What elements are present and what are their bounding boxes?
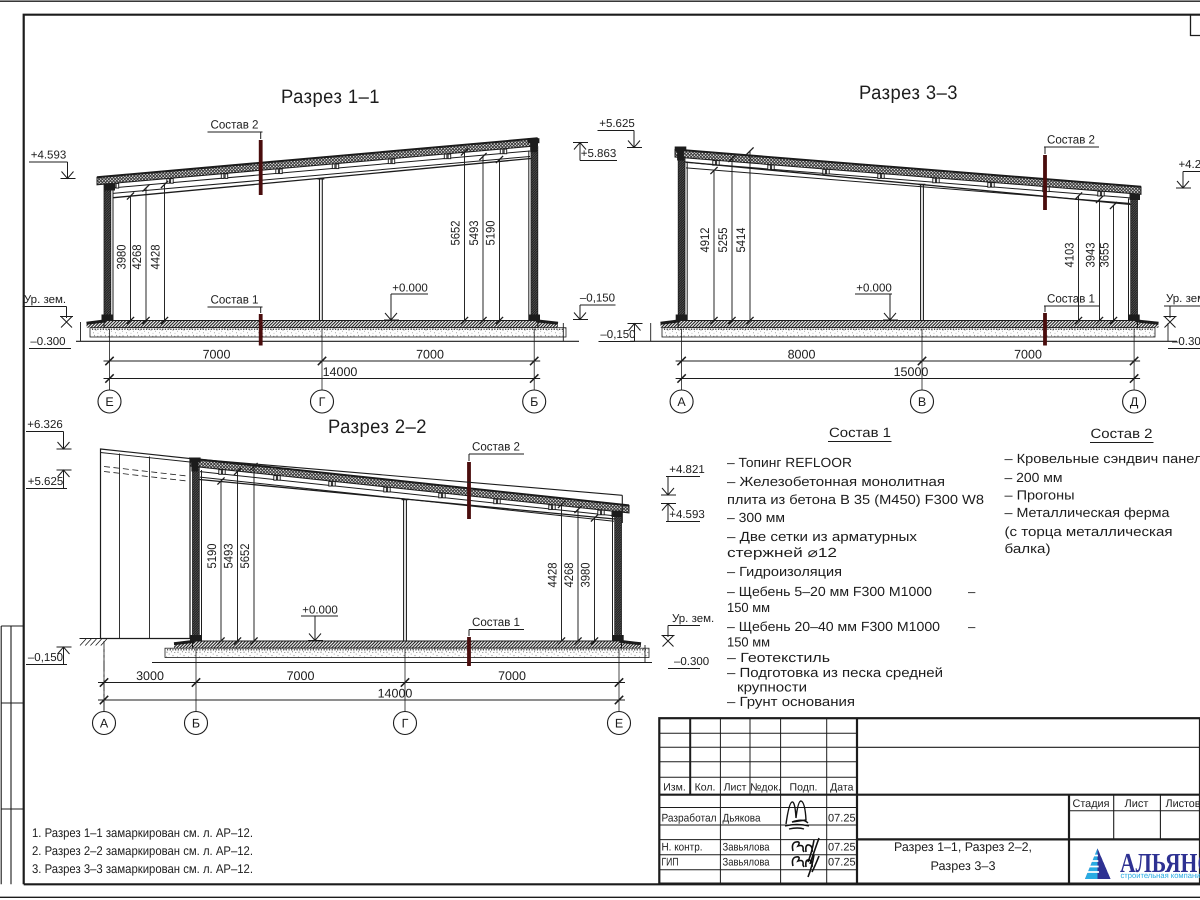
svg-text:–0,150: –0,150 <box>600 329 635 341</box>
svg-text:Состав 1: Состав 1 <box>1047 292 1095 306</box>
svg-text:Дьякова: Дьякова <box>723 813 762 825</box>
svg-text:Разрез 3–3: Разрез 3–3 <box>931 859 996 873</box>
svg-text:14000: 14000 <box>323 365 358 379</box>
svg-text:–: – <box>968 584 976 599</box>
svg-text:7000: 7000 <box>203 347 231 361</box>
svg-text:150 мм: 150 мм <box>727 635 770 650</box>
svg-text:Разработал: Разработал <box>662 813 717 825</box>
svg-text:3655: 3655 <box>1098 242 1112 267</box>
svg-text:4428: 4428 <box>546 562 560 587</box>
svg-text:5493: 5493 <box>222 543 236 568</box>
svg-text:7000: 7000 <box>287 669 315 683</box>
svg-text:3980: 3980 <box>579 562 593 587</box>
svg-text:4428: 4428 <box>149 244 163 269</box>
svg-text:Разрез 3–3: Разрез 3–3 <box>859 82 958 104</box>
svg-text:+5.625: +5.625 <box>599 118 635 130</box>
svg-text:В: В <box>918 395 926 409</box>
svg-text:2. Разрез 2–2 замаркирован см.: 2. Разрез 2–2 замаркирован см. л. АР–12. <box>32 844 253 858</box>
svg-text:15000: 15000 <box>894 365 929 379</box>
svg-text:Е: Е <box>105 395 113 409</box>
svg-text:– Железобетонная монолитная: – Железобетонная монолитная <box>727 474 945 489</box>
svg-text:+0.000: +0.000 <box>392 283 428 295</box>
svg-text:+0.000: +0.000 <box>302 605 338 617</box>
svg-text:Стадия: Стадия <box>1073 798 1110 810</box>
svg-text:7000: 7000 <box>416 347 444 361</box>
svg-text:5652: 5652 <box>449 220 463 245</box>
svg-text:–0.30: –0.30 <box>1172 336 1200 348</box>
svg-text:150 мм: 150 мм <box>727 600 770 615</box>
svg-text:– Щебень 5–20 мм F300 М1000: – Щебень 5–20 мм F300 М1000 <box>727 584 932 599</box>
svg-text:Листов: Листов <box>1166 798 1200 810</box>
svg-text:1. Разрез 1–1 замаркирован см.: 1. Разрез 1–1 замаркирован см. л. АР–12. <box>32 826 253 840</box>
svg-text:Ур. зем.: Ур. зем. <box>24 294 66 306</box>
svg-text:Б: Б <box>530 395 538 409</box>
svg-text:А: А <box>677 395 686 409</box>
svg-text:Лист: Лист <box>1125 798 1149 810</box>
svg-text:14000: 14000 <box>378 686 413 700</box>
svg-text:Разрез 1–1: Разрез 1–1 <box>281 86 380 108</box>
svg-text:8000: 8000 <box>788 347 816 361</box>
svg-text:+6.326: +6.326 <box>27 419 63 431</box>
svg-text:Г: Г <box>402 717 409 731</box>
svg-text:5190: 5190 <box>205 543 219 568</box>
svg-text:5652: 5652 <box>238 543 252 568</box>
svg-text:+5.863: +5.863 <box>581 148 617 160</box>
svg-text:– 200 мм: – 200 мм <box>1005 470 1063 485</box>
svg-text:07.25: 07.25 <box>828 857 856 869</box>
svg-text:–: – <box>968 619 976 634</box>
svg-text:Н. контр.: Н. контр. <box>662 842 703 854</box>
svg-text:7000: 7000 <box>498 669 526 683</box>
svg-text:– Металлическая ферма: – Металлическая ферма <box>1005 505 1171 520</box>
svg-text:Б: Б <box>192 717 200 731</box>
svg-text:4912: 4912 <box>698 227 712 252</box>
svg-text:– Прогоны: – Прогоны <box>1005 488 1075 503</box>
svg-text:– 300 мм: – 300 мм <box>727 510 785 525</box>
svg-text:3. Разрез 3–3 замаркирован см.: 3. Разрез 3–3 замаркирован см. л. АР–12. <box>32 862 253 876</box>
svg-text:стержней ⌀12: стержней ⌀12 <box>727 545 837 560</box>
svg-text:–0.300: –0.300 <box>30 336 65 348</box>
svg-text:А: А <box>100 717 109 731</box>
svg-text:Завьялова: Завьялова <box>723 857 771 869</box>
svg-text:Состав 2: Состав 2 <box>472 440 520 454</box>
svg-text:плита из бетона В 35 (М450) F3: плита из бетона В 35 (М450) F300 W8 <box>727 492 984 507</box>
svg-text:4103: 4103 <box>1063 242 1077 267</box>
svg-text:– Кровельные сэндвич панели: – Кровельные сэндвич панели <box>1005 451 1200 466</box>
svg-text:+4.593: +4.593 <box>669 509 705 521</box>
svg-text:ГИП: ГИП <box>662 857 679 869</box>
svg-text:– Щебень 20–40 мм F300 М1000: – Щебень 20–40 мм F300 М1000 <box>727 619 940 634</box>
svg-text:+4.593: +4.593 <box>31 150 67 162</box>
svg-text:строительная компания: строительная компания <box>1121 871 1200 880</box>
svg-text:– Две сетки из арматурных: – Две сетки из арматурных <box>727 529 917 544</box>
svg-text:– Гидроизоляция: – Гидроизоляция <box>727 564 842 579</box>
svg-text:Ур. зем.: Ур. зем. <box>672 613 714 625</box>
svg-text:+4.821: +4.821 <box>669 464 705 476</box>
svg-text:Разрез 2–2: Разрез 2–2 <box>328 416 427 438</box>
svg-text:– Топинг REFLOOR: – Топинг REFLOOR <box>727 455 852 470</box>
svg-text:3943: 3943 <box>1084 242 1098 267</box>
svg-text:07.25: 07.25 <box>828 813 856 825</box>
svg-text:–0,150: –0,150 <box>580 293 615 305</box>
svg-text:Состав 2: Состав 2 <box>1047 133 1095 147</box>
svg-text:4268: 4268 <box>130 244 144 269</box>
svg-text:(с торца металлическая: (с торца металлическая <box>1005 524 1173 539</box>
svg-text:№док.: №док. <box>750 782 781 794</box>
svg-text:Ур. зем.: Ур. зем. <box>1166 293 1200 305</box>
svg-text:3980: 3980 <box>115 244 129 269</box>
svg-text:Дата: Дата <box>830 782 853 794</box>
svg-text:+0.000: +0.000 <box>856 283 892 295</box>
svg-text:3000: 3000 <box>136 669 164 683</box>
svg-text:– Грунт основания: – Грунт основания <box>727 694 855 709</box>
svg-text:Изм.: Изм. <box>663 782 686 794</box>
svg-text:+5.625: +5.625 <box>28 476 64 488</box>
svg-text:Завьялова: Завьялова <box>723 842 771 854</box>
svg-text:Состав 1: Состав 1 <box>472 615 520 629</box>
svg-text:Состав 2: Состав 2 <box>211 118 259 132</box>
svg-text:5414: 5414 <box>734 227 748 252</box>
svg-text:+4.26: +4.26 <box>1178 159 1200 171</box>
svg-text:07.25: 07.25 <box>828 842 856 854</box>
svg-text:7000: 7000 <box>1014 347 1042 361</box>
svg-text:Кол.: Кол. <box>695 782 716 794</box>
svg-text:4268: 4268 <box>562 562 576 587</box>
svg-text:Разрез 1–1, Разрез 2–2,: Разрез 1–1, Разрез 2–2, <box>894 840 1032 854</box>
svg-text:Состав 1: Состав 1 <box>211 293 259 307</box>
svg-text:Лист: Лист <box>724 782 747 794</box>
svg-text:5493: 5493 <box>467 220 481 245</box>
svg-text:Д: Д <box>1130 395 1139 409</box>
svg-text:5190: 5190 <box>484 220 498 245</box>
svg-text:Е: Е <box>615 717 623 731</box>
svg-text:– Геотекстиль: – Геотекстиль <box>727 650 830 665</box>
svg-text:балка): балка) <box>1005 541 1051 556</box>
svg-text:крупности: крупности <box>737 680 807 695</box>
svg-text:Г: Г <box>319 395 326 409</box>
svg-text:– Подготовка из песка средней: – Подготовка из песка средней <box>727 665 943 680</box>
svg-text:Состав 2: Состав 2 <box>1091 426 1153 441</box>
svg-text:Подп.: Подп. <box>790 782 818 794</box>
svg-text:–0.300: –0.300 <box>674 656 709 668</box>
svg-text:5255: 5255 <box>716 227 730 252</box>
svg-text:Состав 1: Состав 1 <box>829 425 891 440</box>
